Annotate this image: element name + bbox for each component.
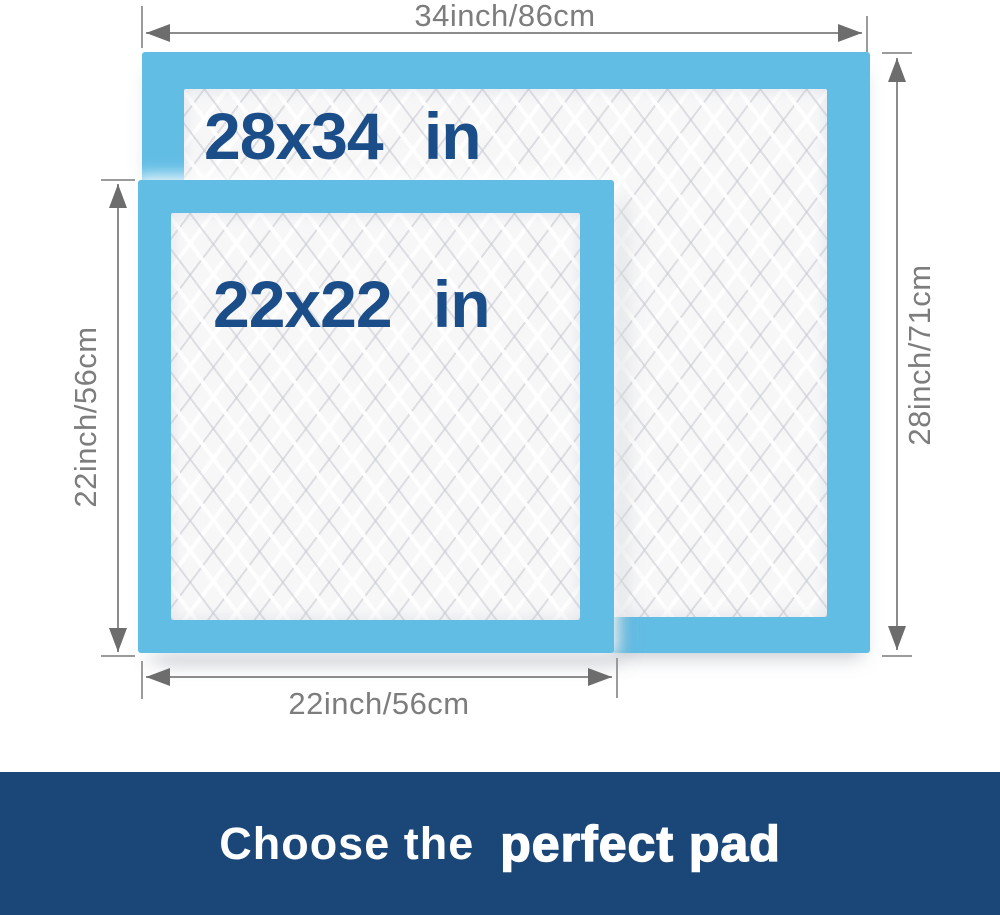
dimension-left-bottom-tick — [101, 655, 135, 657]
arrowhead-right-icon — [838, 24, 862, 42]
dimension-bottom-line — [146, 676, 612, 678]
dimension-top-label: 34inch/86cm — [142, 0, 868, 34]
dimension-right-label: 28inch/71cm — [902, 205, 940, 505]
arrowhead-right-icon — [588, 668, 612, 686]
arrowhead-left-icon — [146, 24, 170, 42]
small-pad-size-label: 22x22 in — [213, 271, 490, 337]
banner-emphasis-text: perfect pad — [500, 815, 781, 873]
product-size-diagram: 28x34 in 22x22 in 34inch/86cm 28inch/71c… — [0, 0, 1000, 915]
dimension-left-top-tick — [101, 179, 135, 181]
arrowhead-up-icon — [109, 184, 127, 208]
dimension-left-line — [117, 184, 119, 652]
dimension-bottom-label: 22inch/56cm — [142, 686, 616, 722]
arrowhead-up-icon — [888, 58, 906, 82]
small-pad: 22x22 in — [138, 180, 614, 653]
small-pad-quilted-surface: 22x22 in — [171, 213, 580, 620]
banner-lead-text: Choose the — [219, 818, 474, 870]
dimension-top-line — [146, 32, 862, 34]
arrowhead-left-icon — [146, 668, 170, 686]
dimension-left-label: 22inch/56cm — [68, 267, 106, 567]
dimension-right-bottom-tick — [882, 655, 912, 657]
banner: Choose the perfect pad — [0, 772, 1000, 915]
dimension-bottom-left-tick — [141, 661, 143, 699]
dimension-top-right-tick — [866, 16, 868, 52]
dimension-top-left-tick — [141, 6, 143, 48]
large-pad-size-label: 28x34 in — [204, 103, 481, 169]
dimension-right-line — [896, 58, 898, 650]
arrowhead-down-icon — [888, 626, 906, 650]
dimension-right-top-tick — [882, 52, 912, 54]
arrowhead-down-icon — [109, 628, 127, 652]
dimension-bottom-right-tick — [616, 658, 618, 698]
